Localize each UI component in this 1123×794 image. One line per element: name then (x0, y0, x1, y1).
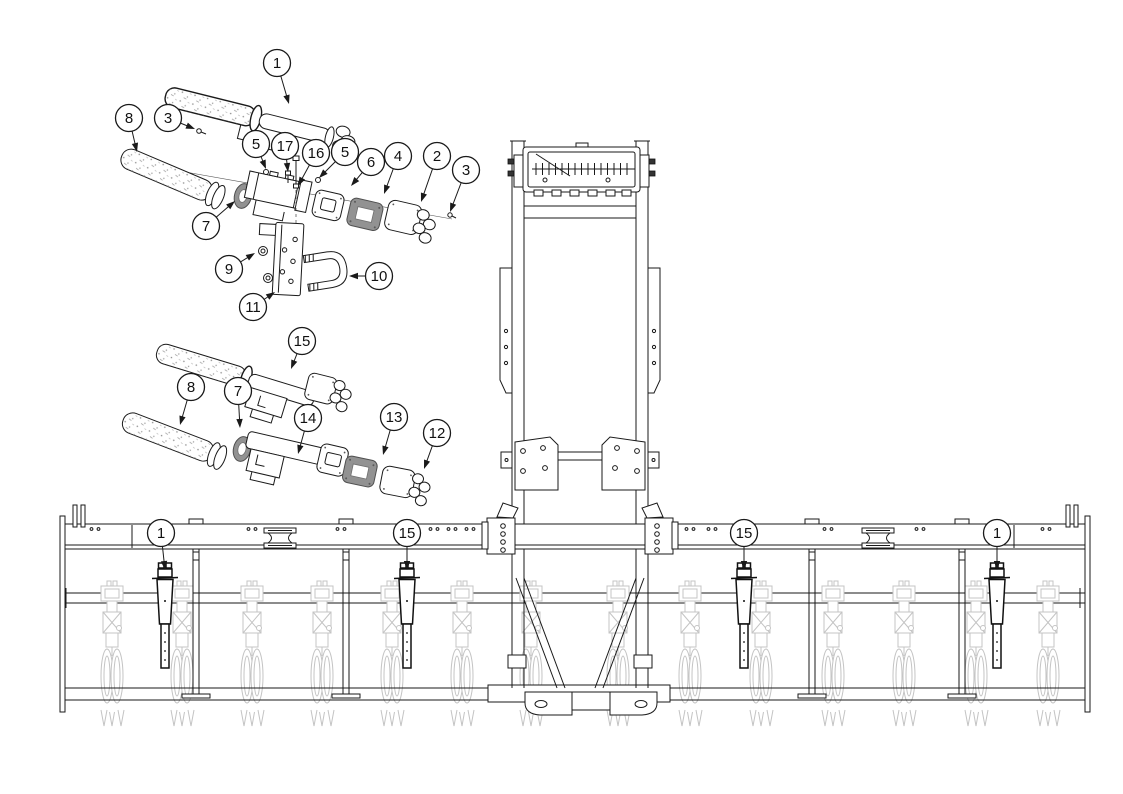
callout-number-7: 7 (234, 383, 242, 400)
callout-number-8: 8 (187, 379, 195, 396)
marker-tube-part-8 (117, 144, 228, 210)
callout-number-7: 7 (202, 218, 210, 235)
hose-manifold-part-12 (378, 465, 433, 507)
callout-arrowhead (291, 359, 297, 369)
callout-number-17: 17 (277, 138, 294, 155)
callout-number-8: 8 (125, 110, 133, 127)
marker-tube-part-8-lower (119, 408, 230, 471)
hose-manifold-part-2 (382, 199, 439, 245)
parts-diagram-canvas: Line-art exploded parts diagram with num… (0, 0, 1123, 794)
callout-arrowhead (421, 192, 427, 202)
callout-number-4: 4 (394, 148, 402, 165)
callout-number-6: 6 (367, 154, 375, 171)
callout-number-5: 5 (341, 144, 349, 161)
callout-number-11: 11 (245, 299, 261, 316)
callout-arrowhead (349, 273, 358, 279)
callout-number-13: 13 (386, 409, 403, 426)
callout-arrowhead (179, 415, 185, 425)
callout-number-10: 10 (371, 268, 388, 285)
callout-arrowhead (185, 123, 195, 129)
callout-number-15: 15 (399, 525, 416, 542)
callout-number-16: 16 (308, 145, 325, 162)
callout-number-14: 14 (300, 410, 317, 427)
mount-bracket-part-11 (256, 222, 304, 296)
callout-arrowhead (283, 94, 289, 104)
callout-number-2: 2 (433, 148, 441, 165)
marker-clamp-body (241, 167, 312, 225)
rear-bar (62, 685, 1085, 715)
installed-marker-assemblies (152, 563, 1010, 668)
main-toolbar-beam (62, 518, 1085, 554)
tower-crossbar (524, 206, 636, 218)
callout-number-1: 1 (273, 55, 281, 72)
callout-number-15: 15 (294, 333, 311, 350)
callout-arrowhead (260, 159, 266, 169)
callout-arrowhead (424, 459, 430, 469)
callout-arrowhead (384, 184, 390, 194)
callout-arrowhead (382, 445, 388, 455)
callout-number-9: 9 (225, 261, 233, 278)
callout-arrowhead (266, 292, 275, 300)
clamp-weldment-part-14 (238, 426, 349, 500)
rowunit-mount-bar (62, 588, 1085, 608)
backing-plate-part-6 (311, 189, 345, 222)
callout-number-15: 15 (736, 525, 753, 542)
u-bolt-part-10 (303, 249, 349, 291)
callout-number-1: 1 (157, 525, 165, 542)
callout-number-3: 3 (462, 162, 470, 179)
diagram-page: Line-art exploded parts diagram with num… (0, 0, 1123, 794)
gasket-part-4 (346, 197, 384, 232)
callout-number-3: 3 (164, 110, 172, 127)
callout-number-1: 1 (993, 525, 1001, 542)
callout-arrowhead (450, 202, 456, 212)
callout-arrowhead (246, 253, 255, 260)
callout-arrowhead (236, 419, 242, 428)
center-hitch-tower (497, 141, 663, 688)
gasket-part-13 (341, 455, 378, 488)
nuts-part-9 (259, 247, 273, 283)
distribution-manifold-box (508, 143, 655, 196)
callout-number-5: 5 (252, 136, 260, 153)
callout-number-12: 12 (429, 425, 446, 442)
